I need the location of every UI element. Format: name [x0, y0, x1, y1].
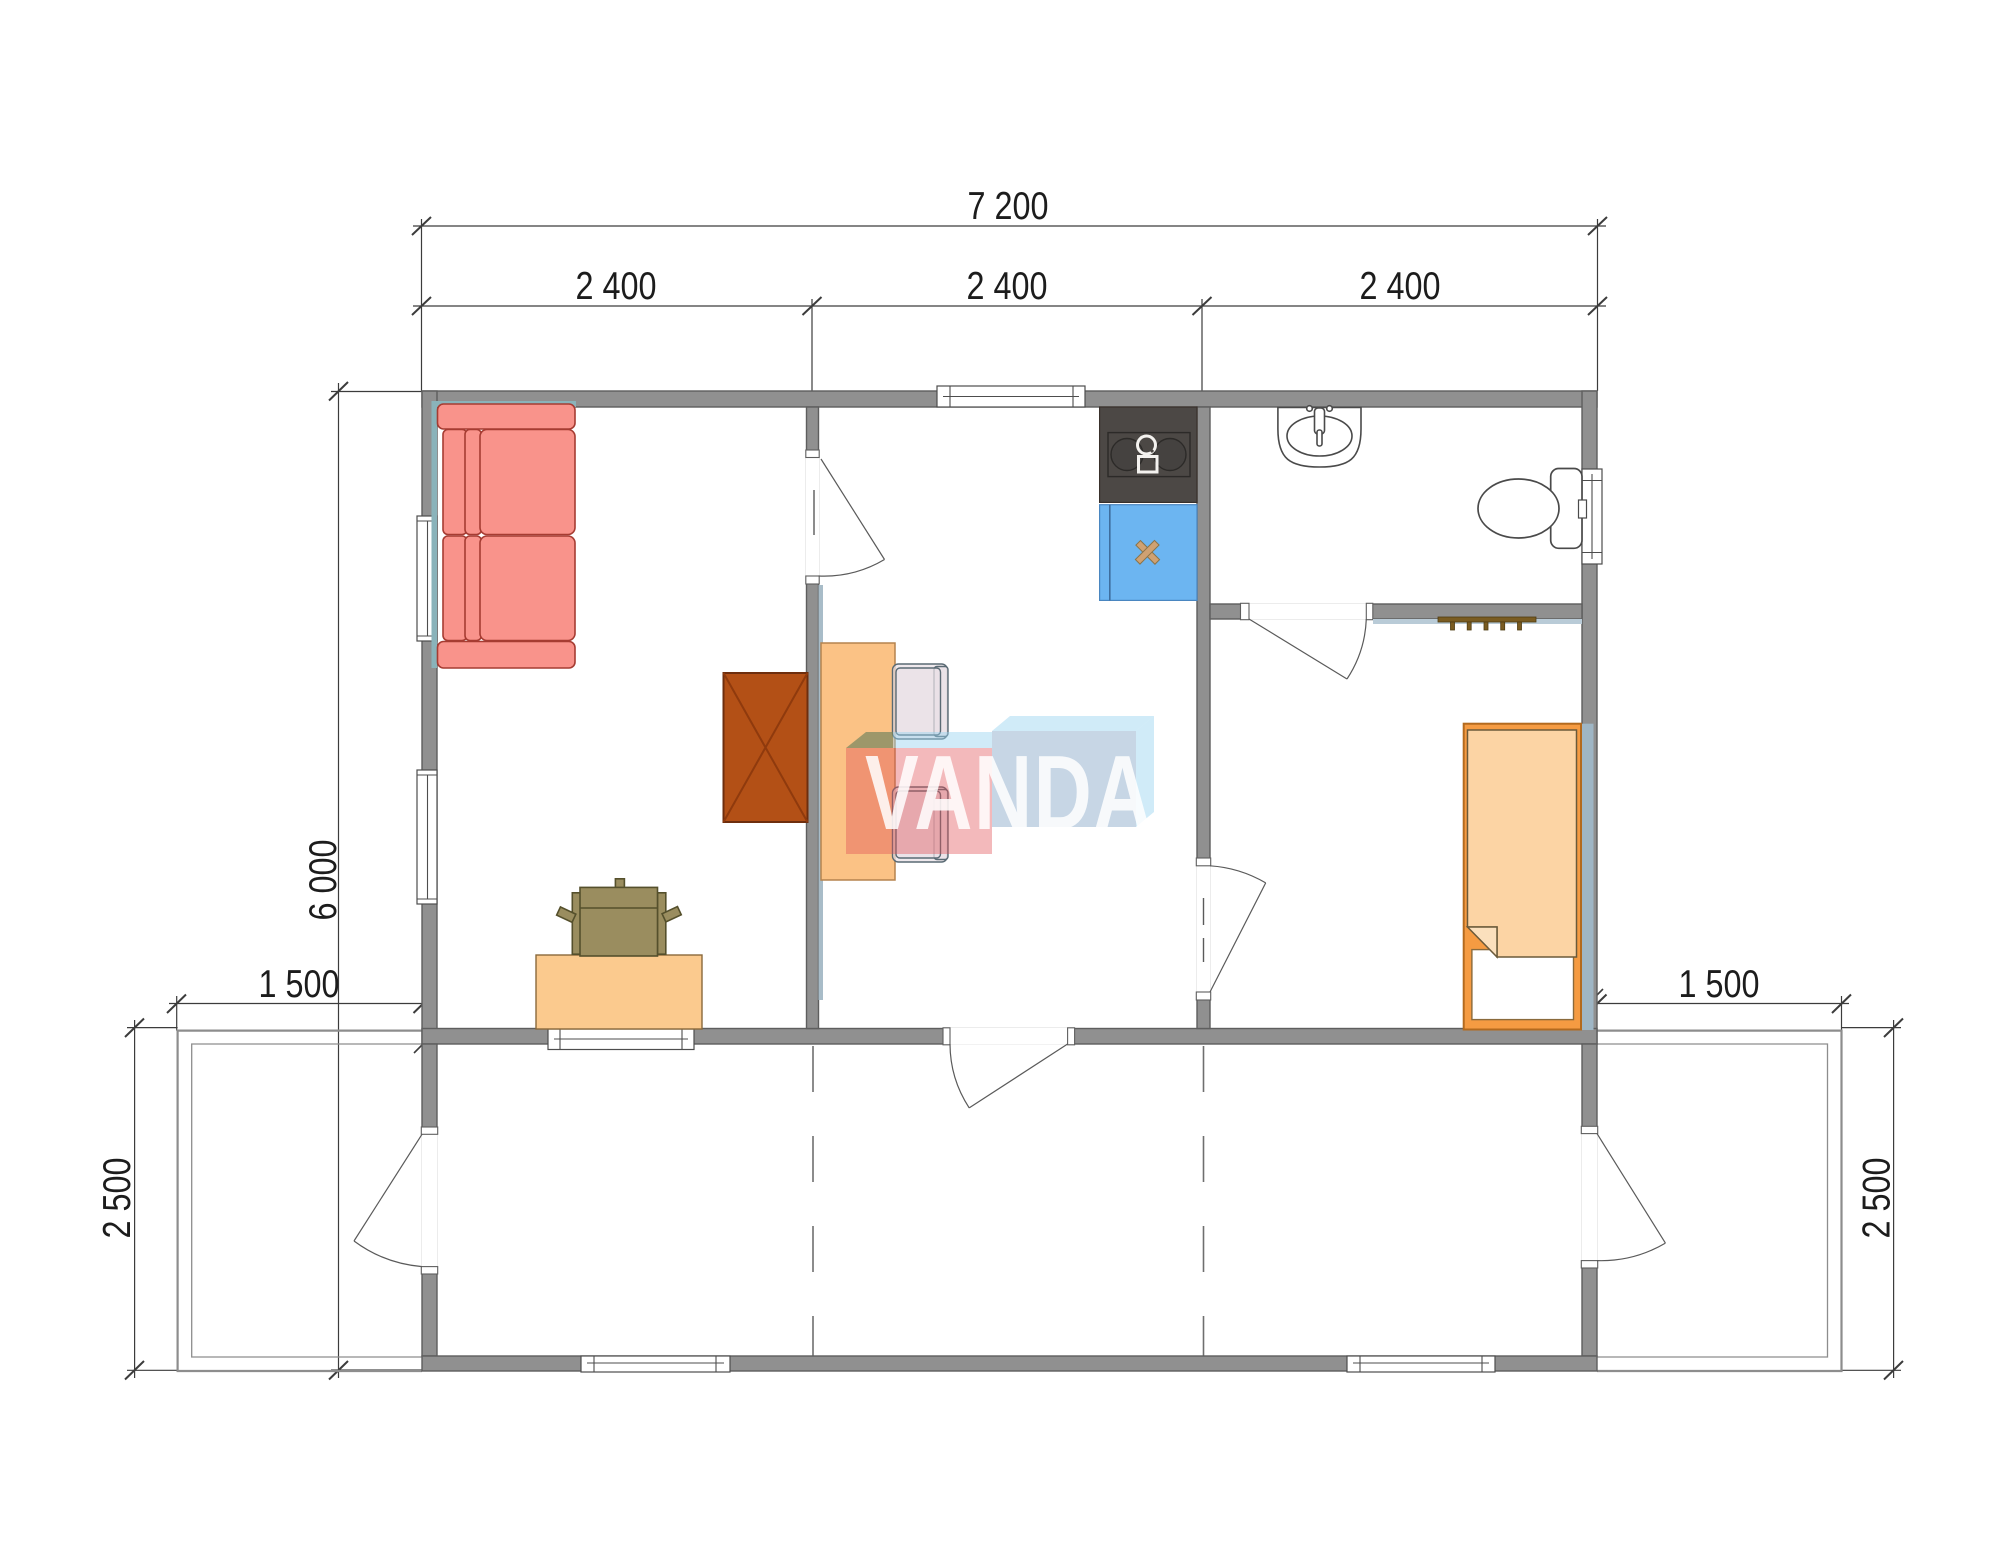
svg-text:2 400: 2 400	[1360, 265, 1441, 308]
svg-text:2 500: 2 500	[96, 1158, 139, 1239]
svg-text:VANDA: VANDA	[865, 733, 1153, 851]
svg-text:1 500: 1 500	[1679, 963, 1760, 1006]
svg-text:2 500: 2 500	[1856, 1158, 1899, 1239]
svg-text:1 500: 1 500	[259, 963, 340, 1006]
svg-text:2 400: 2 400	[576, 265, 657, 308]
svg-text:7 200: 7 200	[968, 185, 1049, 228]
svg-text:2 400: 2 400	[967, 265, 1048, 308]
svg-text:6 000: 6 000	[302, 840, 345, 921]
